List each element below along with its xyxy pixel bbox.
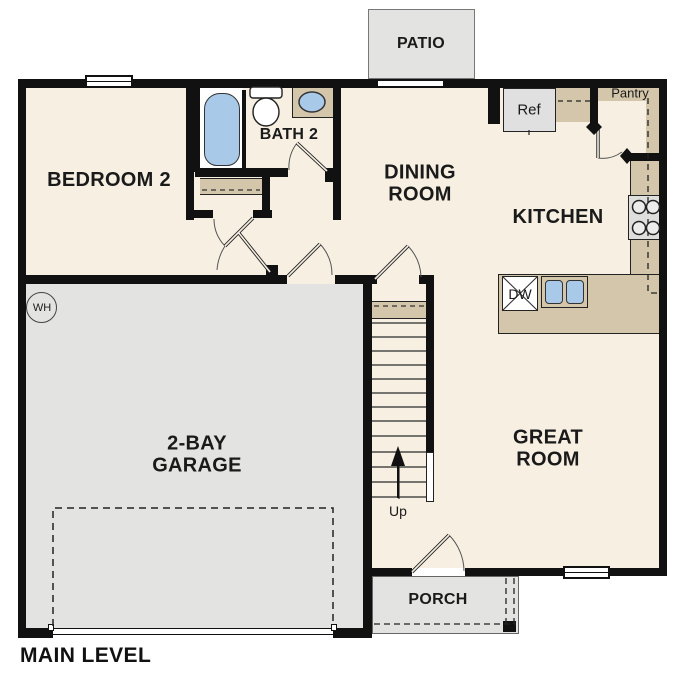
vanity-sink [299, 92, 325, 112]
toilet-tank [250, 87, 282, 98]
stove-burners [633, 201, 660, 235]
bath-door-arc [289, 143, 297, 170]
coat-closet-door-arc [408, 246, 421, 277]
floor-plan: BEDROOM 2 BATH 2 DINING ROOM KITCHEN GRE… [0, 0, 687, 687]
stair-arrow-head [391, 446, 405, 466]
toilet-bowl [253, 98, 279, 126]
pantry-corner-diamond-2 [620, 148, 634, 164]
ref-label: Ref [517, 102, 540, 119]
garage-label: 2-BAY GARAGE [152, 433, 242, 478]
plan-annotations [0, 0, 687, 687]
garage-door-dashed [53, 508, 333, 626]
front-door-arc [449, 535, 464, 571]
plan-title: MAIN LEVEL [20, 644, 151, 668]
kitchen-label: KITCHEN [513, 206, 604, 228]
dining-label: DINING ROOM [384, 162, 456, 207]
patio-label: PATIO [397, 35, 445, 53]
greatroom-label: GREAT ROOM [513, 427, 583, 472]
garage-entry-door-arc [320, 244, 332, 275]
up-label: Up [389, 503, 407, 519]
bath2-label: BATH 2 [260, 126, 318, 144]
dw-label: DW [508, 286, 531, 302]
porch-label: PORCH [408, 591, 467, 609]
pantry-door-arc [598, 152, 622, 158]
closet-door-arc [214, 219, 225, 246]
pantry-label: Pantry [611, 86, 649, 101]
wh-label: WH [33, 302, 51, 314]
kitchen-upper-cabinet-dashed [648, 98, 658, 293]
bedroom2-label: BEDROOM 2 [47, 169, 171, 191]
